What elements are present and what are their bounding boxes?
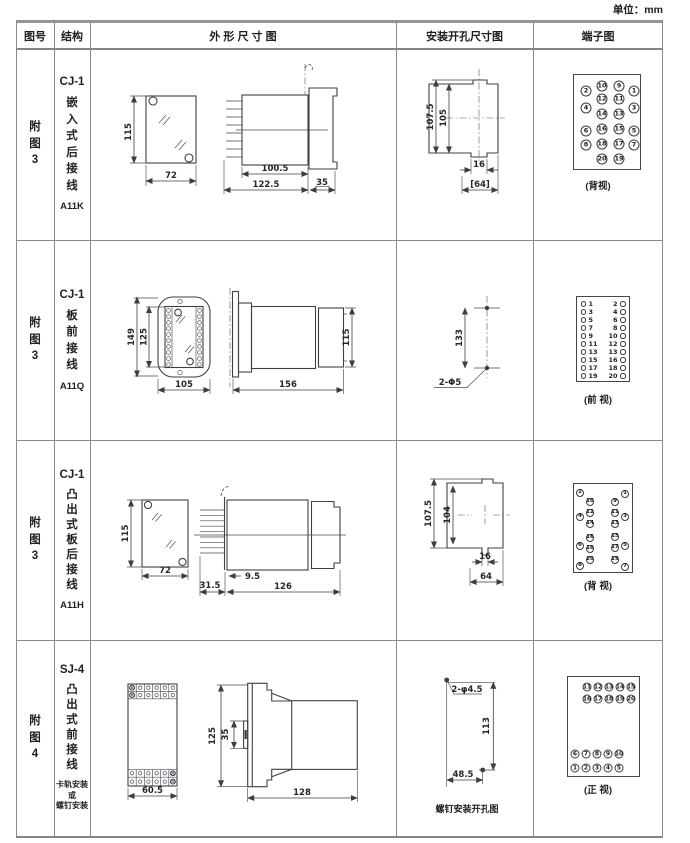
hole-view: 2-φ4.5 113 48.5 螺钉安装开孔图 bbox=[435, 678, 498, 814]
terminal-pin: 4 bbox=[581, 103, 592, 114]
terminal-pin: 6 bbox=[581, 126, 592, 137]
terminal-pin: 20 bbox=[627, 695, 636, 704]
fig-no-text: 附 图 3 bbox=[29, 515, 41, 565]
cutout-view: 107.5 105 16 [64] bbox=[426, 69, 505, 194]
dim-label: 149 bbox=[127, 328, 137, 346]
dim-label: 115 bbox=[124, 123, 134, 141]
terminal-pin: 2 bbox=[576, 489, 584, 497]
install-cell: 133 2-Φ5 bbox=[396, 240, 533, 440]
structure-text: 板 前 接 线 bbox=[66, 308, 78, 374]
dim-label: 60.5 bbox=[142, 786, 163, 796]
terminal-pin: 11 bbox=[583, 683, 592, 692]
terminal-pin: 18 bbox=[597, 139, 608, 150]
outline-cell: 115 72 9.5 31.5 bbox=[90, 440, 396, 640]
hole-spec-label: 2-φ4.5 bbox=[451, 685, 482, 695]
terminal-cell: 2109112114141336161558181772019 (背视) bbox=[533, 48, 663, 240]
dim-label: 72 bbox=[159, 566, 171, 576]
terminal-caption: (背视) bbox=[533, 178, 663, 192]
install-drawing-a11q: 133 2-Φ5 bbox=[396, 240, 533, 440]
dim-label: 125 bbox=[140, 328, 150, 346]
terminal-pin: 12 bbox=[586, 509, 594, 517]
terminal-block-dots bbox=[130, 686, 174, 783]
terminal-row: 12 bbox=[581, 300, 626, 308]
dim-label: 128 bbox=[293, 788, 311, 798]
structure-cell: CJ-1 板 前 接 线 A11Q bbox=[54, 240, 90, 440]
terminal-pin: 13 bbox=[605, 683, 614, 692]
side-view: 100.5 122.5 35 bbox=[224, 64, 337, 194]
structure-cell: CJ-1 嵌 入 式 后 接 线 A11K bbox=[54, 48, 90, 240]
terminal-row: 34 bbox=[581, 308, 626, 316]
terminal-row: 1112 bbox=[581, 340, 626, 348]
terminal-box: 1112131415161718192067891012345 bbox=[567, 676, 640, 777]
install-drawing-sj4: 2-φ4.5 113 48.5 螺钉安装开孔图 bbox=[396, 640, 533, 836]
terminal-pin: 2 bbox=[582, 764, 591, 773]
terminal-pin: 11 bbox=[614, 94, 625, 105]
side-view: 125 35 128 bbox=[208, 683, 357, 802]
side-view: 9.5 31.5 126 bbox=[194, 486, 346, 596]
model-label: CJ-1 bbox=[60, 469, 85, 481]
dim-label: 125 bbox=[208, 727, 218, 745]
terminal-pin: 11 bbox=[611, 509, 619, 517]
terminal-caption: (正 视) bbox=[533, 782, 663, 796]
terminal-pin: 20 bbox=[597, 154, 608, 165]
install-drawing-a11h: 107.5 104 16 64 bbox=[396, 440, 533, 640]
terminal-pin: 1 bbox=[629, 86, 640, 97]
terminal-pin: 9 bbox=[614, 81, 625, 92]
fig-no-text: 附 图 3 bbox=[29, 315, 41, 365]
terminal-pin: 17 bbox=[611, 544, 619, 552]
terminal-caption: (背 视) bbox=[533, 578, 663, 592]
install-cell: 107.5 104 16 64 bbox=[396, 440, 533, 640]
outline-cell: 149 125 105 156 bbox=[90, 240, 396, 440]
dim-label: 113 bbox=[482, 717, 492, 735]
cutout-view: 107.5 104 16 64 bbox=[424, 479, 510, 586]
unit-label: 单位：mm bbox=[613, 2, 663, 17]
datasheet-page: 单位：mm 图号 结构 外 形 尺 寸 图 安装开孔尺寸图 端子图 附 图 3 … bbox=[0, 0, 690, 843]
hole-spec-label: 2-Φ5 bbox=[439, 378, 462, 388]
outline-drawing-sj4: 60.5 125 35 128 bbox=[90, 640, 396, 836]
terminal-pin: 15 bbox=[611, 533, 619, 541]
terminal-row: 1516 bbox=[581, 356, 626, 364]
header-structure: 结构 bbox=[54, 23, 90, 48]
dim-label: 72 bbox=[165, 171, 177, 181]
terminal-pin: 5 bbox=[621, 542, 629, 550]
terminal-box: 1234567891011121313151617181920 bbox=[576, 296, 630, 382]
terminal-pin: 10 bbox=[586, 498, 594, 506]
terminal-pin: 10 bbox=[597, 81, 608, 92]
terminal-pin: 12 bbox=[594, 683, 603, 692]
install-cell: 107.5 105 16 [64] bbox=[396, 48, 533, 240]
model-label: SJ-4 bbox=[60, 664, 84, 676]
front-view: 115 72 bbox=[124, 96, 196, 186]
hole-view: 133 2-Φ5 bbox=[434, 296, 500, 388]
structure-cell: CJ-1 凸 出 式 板 后 接 线 A11H bbox=[54, 440, 90, 640]
terminal-row: 1718 bbox=[581, 364, 626, 372]
drawing-table: 图号 结构 外 形 尺 寸 图 安装开孔尺寸图 端子图 附 图 3 CJ-1 嵌… bbox=[16, 20, 663, 838]
dim-label: 31.5 bbox=[200, 581, 221, 591]
terminal-pin: 18 bbox=[605, 695, 614, 704]
dim-label: 107.5 bbox=[424, 500, 434, 527]
type-code: A11H bbox=[60, 600, 84, 611]
terminal-pin: 17 bbox=[594, 695, 603, 704]
type-code: A11Q bbox=[60, 381, 84, 392]
terminal-pin: 17 bbox=[614, 139, 625, 150]
fig-no-cell: 附 图 3 bbox=[16, 440, 54, 640]
fig-no-cell: 附 图 3 bbox=[16, 48, 54, 240]
dim-label: [64] bbox=[470, 180, 490, 190]
terminal-pin: 2 bbox=[581, 86, 592, 97]
outline-drawing-a11k: 115 72 100.5 122.5 bbox=[90, 48, 396, 240]
terminal-pin: 20 bbox=[586, 556, 594, 564]
terminal-pin: 16 bbox=[586, 534, 594, 542]
model-label: CJ-1 bbox=[60, 76, 85, 88]
fig-no-text: 附 图 3 bbox=[29, 119, 41, 169]
mounting-note: 卡轨安装 或 螺钉安装 bbox=[56, 780, 88, 812]
structure-text: 嵌 入 式 后 接 线 bbox=[66, 95, 78, 194]
terminal-pin: 1 bbox=[571, 764, 580, 773]
outline-cell: 60.5 125 35 128 bbox=[90, 640, 396, 836]
outline-cell: 115 72 100.5 122.5 bbox=[90, 48, 396, 240]
terminal-pin: 7 bbox=[629, 140, 640, 151]
install-drawing-a11k: 107.5 105 16 [64] bbox=[396, 48, 533, 240]
terminal-pin: 13 bbox=[614, 109, 625, 120]
side-view: 156 115 bbox=[230, 288, 356, 394]
terminal-pin: 19 bbox=[616, 695, 625, 704]
terminal-pin: 14 bbox=[616, 683, 625, 692]
terminal-row: 910 bbox=[581, 332, 626, 340]
dim-label: 9.5 bbox=[245, 572, 260, 582]
terminal-pin: 3 bbox=[593, 764, 602, 773]
terminal-pin: 18 bbox=[586, 545, 594, 553]
structure-text: 凸 出 式 前 接 线 bbox=[66, 683, 78, 773]
install-caption: 螺钉安装开孔图 bbox=[435, 803, 498, 814]
fig-no-cell: 附 图 3 bbox=[16, 240, 54, 440]
structure-cell: SJ-4 凸 出 式 前 接 线 卡轨安装 或 螺钉安装 bbox=[54, 640, 90, 836]
terminal-row: 1920 bbox=[581, 372, 626, 380]
header-outline: 外 形 尺 寸 图 bbox=[90, 23, 396, 48]
terminal-pin: 5 bbox=[629, 126, 640, 137]
fig-no-text: 附 图 4 bbox=[29, 713, 41, 763]
dim-label: 16 bbox=[473, 160, 485, 170]
terminal-row: 56 bbox=[581, 316, 626, 324]
din-rail-mark bbox=[245, 730, 247, 739]
terminal-cell: 1112131415161718192067891012345 (正 视) bbox=[533, 640, 663, 836]
terminal-box: 2109112114141336161558181772019 bbox=[573, 74, 641, 170]
dim-label: 48.5 bbox=[453, 770, 474, 780]
dim-label: 35 bbox=[221, 729, 231, 741]
dim-label: 100.5 bbox=[262, 164, 289, 174]
front-view: 60.5 bbox=[128, 684, 177, 800]
outline-drawing-a11h: 115 72 9.5 31.5 bbox=[90, 440, 396, 640]
dim-label: 104 bbox=[443, 506, 453, 524]
dim-label: 107.5 bbox=[426, 103, 436, 130]
outline-drawing-a11q: 149 125 105 156 bbox=[90, 240, 396, 440]
dim-label: 156 bbox=[279, 380, 297, 390]
terminal-pin: 12 bbox=[597, 94, 608, 105]
terminal-pin: 19 bbox=[611, 556, 619, 564]
terminal-pin: 8 bbox=[576, 562, 584, 570]
terminal-pin: 4 bbox=[604, 764, 613, 773]
terminal-caption: (前 视) bbox=[533, 392, 663, 406]
terminal-row: 78 bbox=[581, 324, 626, 332]
terminal-pin: 5 bbox=[615, 764, 624, 773]
terminal-row: 1313 bbox=[581, 348, 626, 356]
terminal-pin: 6 bbox=[576, 542, 584, 550]
terminal-pin: 16 bbox=[597, 124, 608, 135]
dim-label: 105 bbox=[175, 380, 193, 390]
terminal-pin: 15 bbox=[614, 124, 625, 135]
terminal-pin: 1 bbox=[621, 490, 629, 498]
terminal-pin: 16 bbox=[583, 695, 592, 704]
front-view: 149 125 105 bbox=[127, 297, 210, 394]
install-cell: 2-φ4.5 113 48.5 螺钉安装开孔图 bbox=[396, 640, 533, 836]
terminal-pin: 4 bbox=[576, 513, 584, 521]
dim-label: 64 bbox=[480, 572, 492, 582]
structure-text: 凸 出 式 板 后 接 线 bbox=[66, 488, 78, 593]
terminal-cell: 2110912114314131615651817201987 (背 视) bbox=[533, 440, 663, 640]
header-terminal: 端子图 bbox=[533, 23, 663, 48]
header-fig-no: 图号 bbox=[16, 23, 54, 48]
terminal-pin: 6 bbox=[571, 750, 580, 759]
terminal-pin: 9 bbox=[604, 750, 613, 759]
table-bottom-border bbox=[16, 836, 663, 838]
terminal-pin: 15 bbox=[627, 683, 636, 692]
dim-label: 122.5 bbox=[253, 180, 280, 190]
dim-label: 115 bbox=[121, 525, 131, 543]
terminal-pin: 19 bbox=[614, 154, 625, 165]
dim-label: 16 bbox=[479, 552, 491, 562]
terminal-pin: 3 bbox=[621, 513, 629, 521]
dim-label: 105 bbox=[439, 109, 449, 127]
terminal-pin: 13 bbox=[611, 520, 619, 528]
fig-no-cell: 附 图 4 bbox=[16, 640, 54, 836]
terminal-pin: 8 bbox=[593, 750, 602, 759]
terminal-pin: 10 bbox=[615, 750, 624, 759]
model-label: CJ-1 bbox=[60, 289, 85, 301]
terminal-pin: 7 bbox=[621, 563, 629, 571]
terminal-pin: 14 bbox=[586, 520, 594, 528]
type-code: A11K bbox=[60, 201, 84, 212]
terminal-box: 2110912114314131615651817201987 bbox=[573, 483, 633, 573]
dim-label: 126 bbox=[274, 582, 292, 592]
terminal-cell: 1234567891011121313151617181920 (前 视) bbox=[533, 240, 663, 440]
terminal-pin: 3 bbox=[629, 103, 640, 114]
terminal-pin: 8 bbox=[581, 140, 592, 151]
screw-icon bbox=[130, 685, 176, 784]
terminal-pin: 7 bbox=[582, 750, 591, 759]
dim-label: 133 bbox=[455, 329, 465, 347]
header-install: 安装开孔尺寸图 bbox=[396, 23, 533, 48]
terminal-pin: 14 bbox=[597, 109, 608, 120]
dim-label: 115 bbox=[342, 329, 352, 347]
front-view: 115 72 bbox=[121, 500, 188, 580]
terminal-pin: 9 bbox=[611, 498, 619, 506]
